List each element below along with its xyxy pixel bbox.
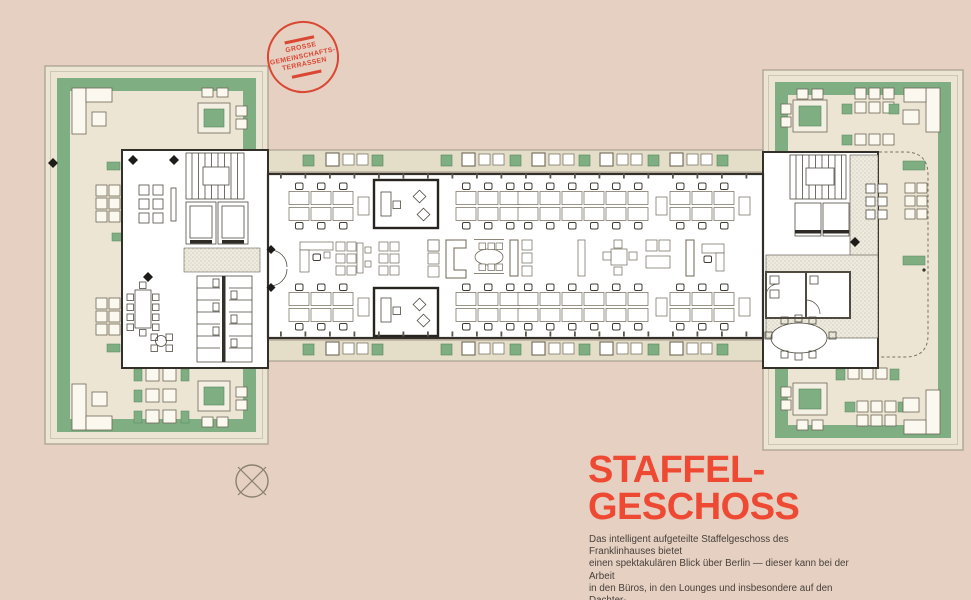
page-title: STAFFEL- GESCHOSS [588, 452, 799, 526]
right-wing-planter-bottom [799, 389, 821, 409]
right-wing-planter-top [799, 106, 821, 126]
left-wing-planter-top [204, 109, 224, 127]
page: GROSSE GEMEINSCHAFTS- TERRASSEN STAFFEL-… [0, 0, 971, 600]
stamp-text: GROSSE GEMEINSCHAFTS- TERRASSEN [268, 37, 339, 76]
long-table [135, 290, 151, 328]
description-text: Das intelligent aufgeteilte Staffelgesch… [589, 534, 857, 600]
oval-dining-table [771, 323, 827, 353]
floor-plan-svg [0, 0, 971, 600]
small-rooms [766, 272, 850, 318]
left-wing-planter-bottom [204, 387, 224, 405]
